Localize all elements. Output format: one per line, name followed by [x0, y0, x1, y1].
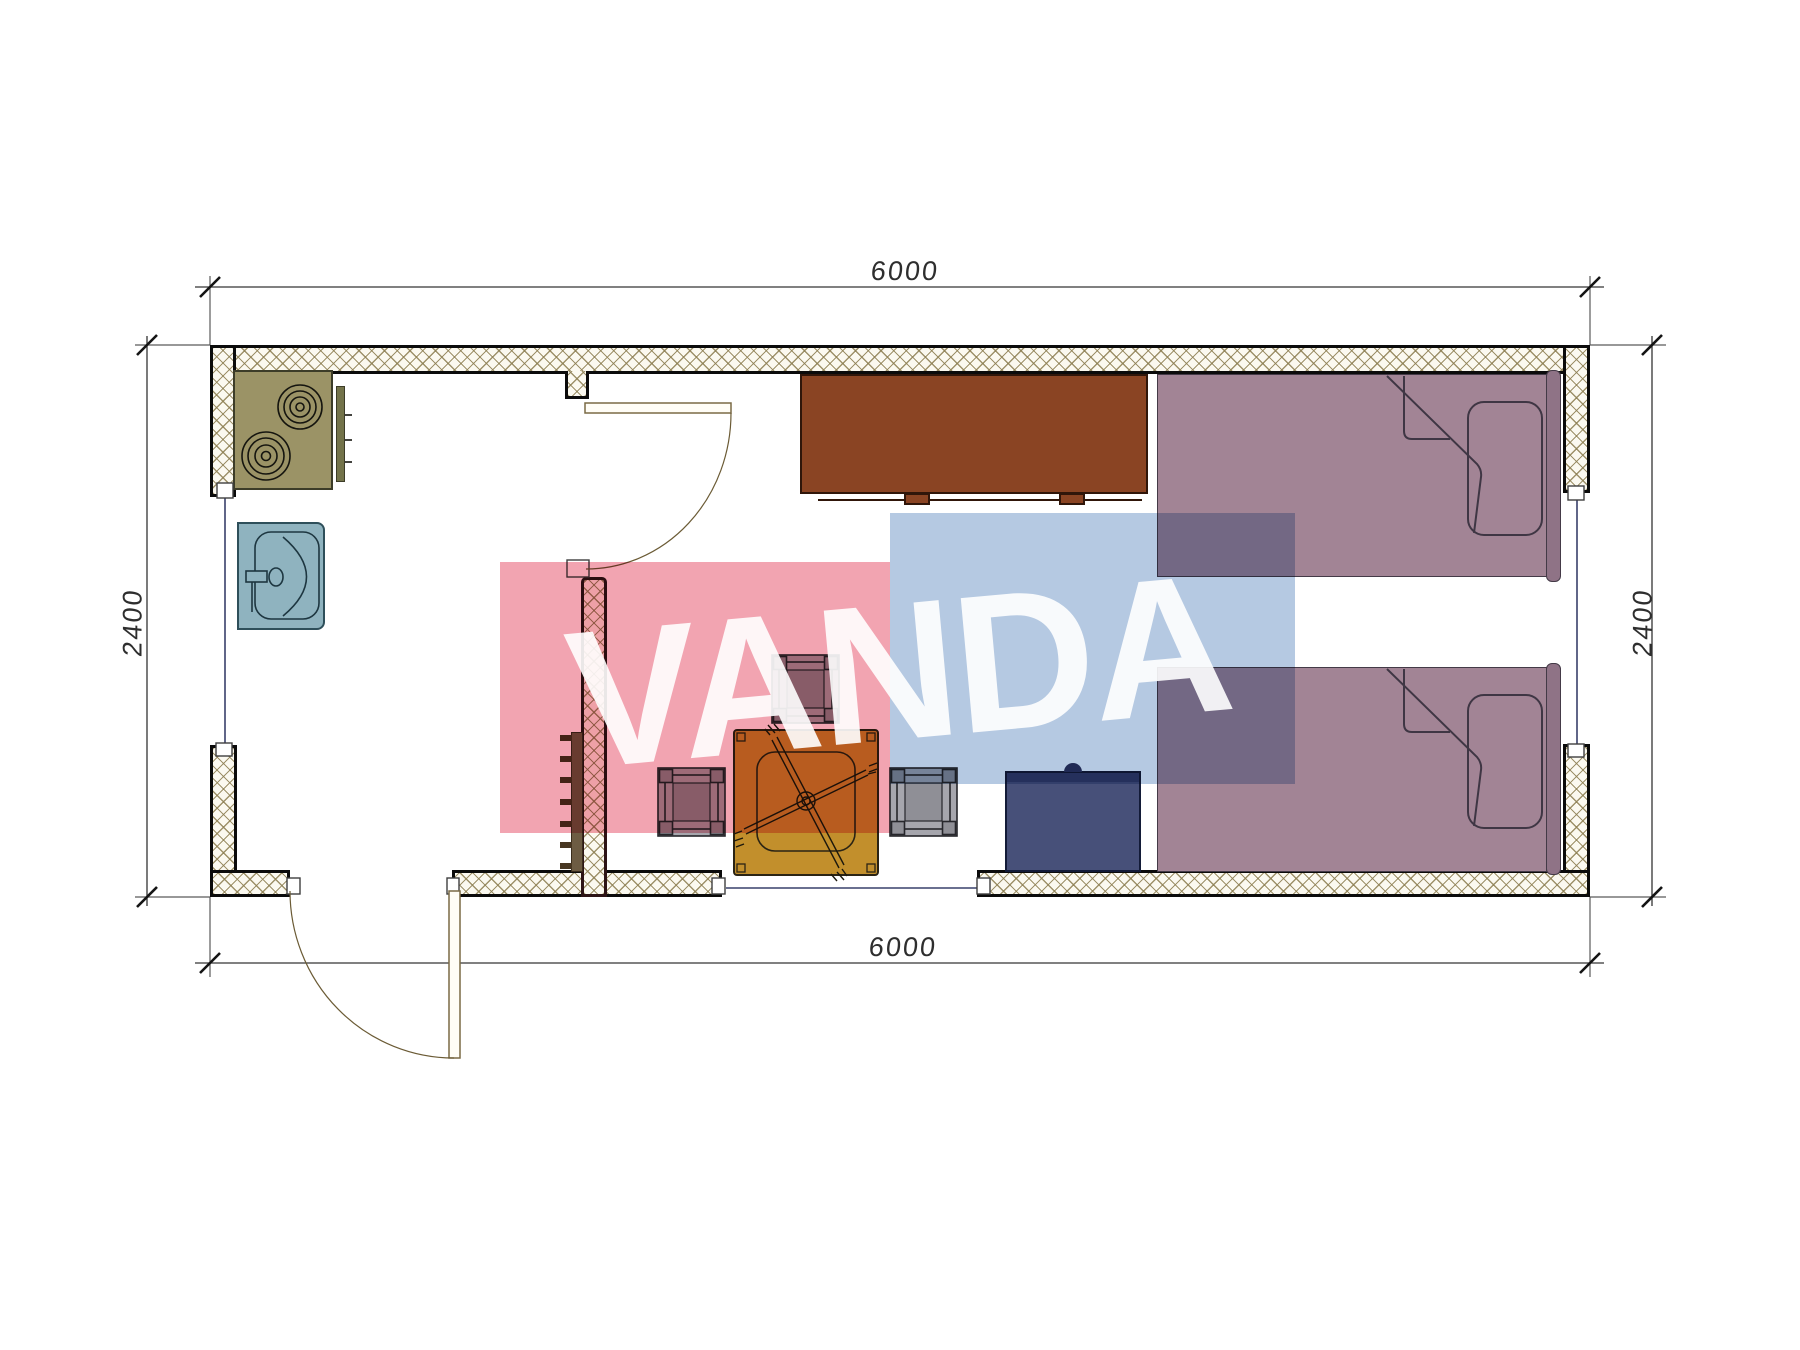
dim-label-top: 6000 [843, 256, 966, 287]
cabinet-base [818, 494, 1142, 504]
sink-basin [246, 532, 319, 619]
bed-bottom-linework [1387, 669, 1542, 828]
floor-plan-canvas: 6000 6000 2400 2400 VANDA [0, 0, 1800, 1350]
dim-label-right: 2400 [1628, 561, 1659, 684]
dim-label-left: 2400 [118, 561, 149, 684]
interior-door [585, 403, 731, 569]
dim-label-bottom: 6000 [841, 932, 964, 963]
stove-burners [242, 385, 352, 480]
watermark-text: VANDA [543, 571, 1253, 774]
bed-top-linework [1387, 376, 1542, 535]
entry-door [290, 891, 460, 1058]
